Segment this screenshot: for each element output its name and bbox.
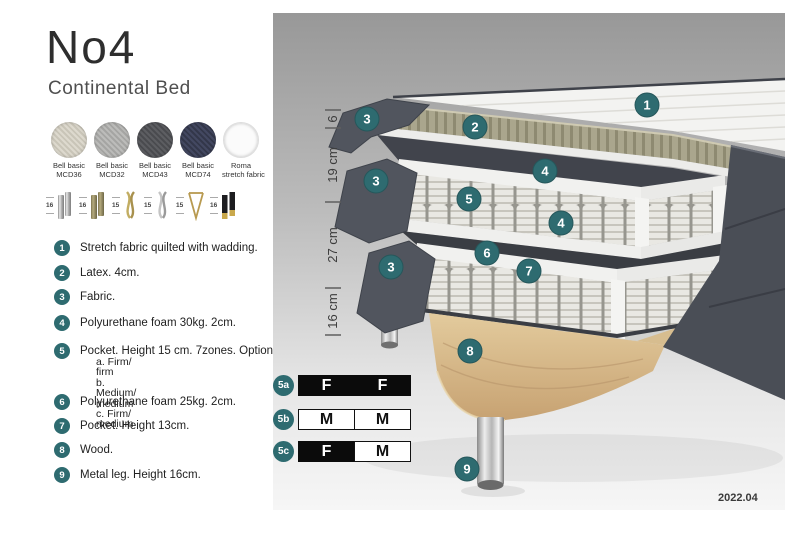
measure-label: 16 cm	[325, 293, 340, 328]
firmness-table: M M	[298, 409, 411, 430]
firmness-cell: M	[354, 441, 411, 462]
bed-cutaway-diagram: 6 19 cm 27 cm 16 cm 1 2 3 4 3 5 4 6 7 3 …	[273, 13, 785, 510]
gold-twist-leg-icon	[121, 189, 141, 221]
fabric-swatch-circle	[180, 122, 216, 158]
product-subtitle: Continental Bed	[48, 78, 191, 100]
hairpin-leg-icon	[185, 189, 207, 221]
item-number-badge: 6	[54, 394, 70, 410]
bed-shadow	[363, 434, 783, 482]
badge-7: 7	[525, 264, 532, 279]
material-item: 8 Wood.	[54, 441, 113, 459]
firmness-badge: 5b	[273, 409, 294, 430]
firmness-cell: F	[298, 375, 355, 396]
bed-cutaway-panel: 6 19 cm 27 cm 16 cm 1 2 3 4 3 5 4 6 7 3 …	[273, 13, 785, 510]
item-number-badge: 3	[54, 289, 70, 305]
material-item: 1 Stretch fabric quilted with wadding.	[54, 239, 258, 257]
badge-6: 6	[483, 246, 490, 261]
material-item: 7 Pocket. Height 13cm.	[54, 417, 189, 435]
fabric-swatch: Romastretch fabric	[222, 122, 260, 179]
leg-option: 16	[79, 188, 108, 222]
firmness-row-5c: 5c F M	[273, 441, 411, 462]
fabric-swatch: Bell basicMCD32	[93, 122, 131, 179]
leg-option: 16	[46, 188, 75, 222]
badge-3-bottom: 3	[387, 260, 394, 275]
firmness-row-5b: 5b M M	[273, 409, 411, 430]
fabric-swatch-circle	[51, 122, 87, 158]
item-number-badge: 4	[54, 315, 70, 331]
material-item: 3 Fabric.	[54, 288, 115, 306]
measure-label: 27 cm	[325, 227, 340, 262]
material-item: 4 Polyurethane foam 30kg. 2cm.	[54, 314, 236, 332]
firmness-badge: 5c	[273, 441, 294, 462]
version-date: 2022.04	[718, 492, 758, 504]
firmness-badge: 5a	[273, 375, 294, 396]
firmness-cell: F	[298, 441, 355, 462]
firmness-row-5a: 5a F F	[273, 375, 411, 396]
fabric-swatch: Bell basicMCD74	[179, 122, 217, 179]
firmness-cell: M	[298, 409, 355, 430]
leg-option: 16	[210, 188, 239, 222]
badge-3-middle: 3	[372, 174, 379, 189]
badge-4-upper: 4	[541, 164, 549, 179]
material-item: 9 Metal leg. Height 16cm.	[54, 466, 201, 484]
badge-4-lower: 4	[557, 216, 565, 231]
black-gold-leg-icon	[219, 189, 239, 221]
firmness-cell: M	[354, 409, 411, 430]
item-number-badge: 7	[54, 418, 70, 434]
material-item: 6 Polyurethane foam 25kg. 2cm.	[54, 393, 236, 411]
fabric-swatch-circle	[137, 122, 173, 158]
leg-option: 15	[176, 188, 207, 222]
leg-option: 15	[144, 188, 173, 222]
material-item: 2 Latex. 4cm.	[54, 264, 139, 282]
fabric-swatch: Bell basicMCD36	[50, 122, 88, 179]
brass-leg-icon	[88, 189, 108, 221]
item-number-badge: 8	[54, 442, 70, 458]
measure-label: 6	[325, 115, 340, 122]
item-number-badge: 9	[54, 467, 70, 483]
badge-2: 2	[471, 120, 478, 135]
badge-9: 9	[463, 462, 470, 477]
badge-3-top: 3	[363, 112, 370, 127]
fabric-swatch-circle	[94, 122, 130, 158]
fabric-swatch: Bell basicMCD43	[136, 122, 174, 179]
product-title: No4	[46, 20, 136, 74]
silver-twist-leg-icon	[153, 189, 173, 221]
fabric-swatch-circle	[223, 122, 259, 158]
badge-5: 5	[465, 192, 472, 207]
item-number-badge: 5	[54, 343, 70, 359]
firmness-table: F F	[298, 375, 411, 396]
measure-label: 19 cm	[325, 147, 340, 182]
item-number-badge: 1	[54, 240, 70, 256]
material-item: 5 Pocket. Height 15 cm. 7zones. Option:	[54, 342, 276, 360]
chrome-leg-icon	[55, 189, 75, 221]
badge-1: 1	[643, 98, 650, 113]
badge-8: 8	[466, 344, 473, 359]
firmness-table: F M	[298, 441, 411, 462]
firmness-cell: F	[354, 375, 411, 396]
fabric-swatches: Bell basicMCD36 Bell basicMCD32 Bell bas…	[50, 122, 260, 179]
item-number-badge: 2	[54, 265, 70, 281]
leg-option: 15	[112, 188, 141, 222]
